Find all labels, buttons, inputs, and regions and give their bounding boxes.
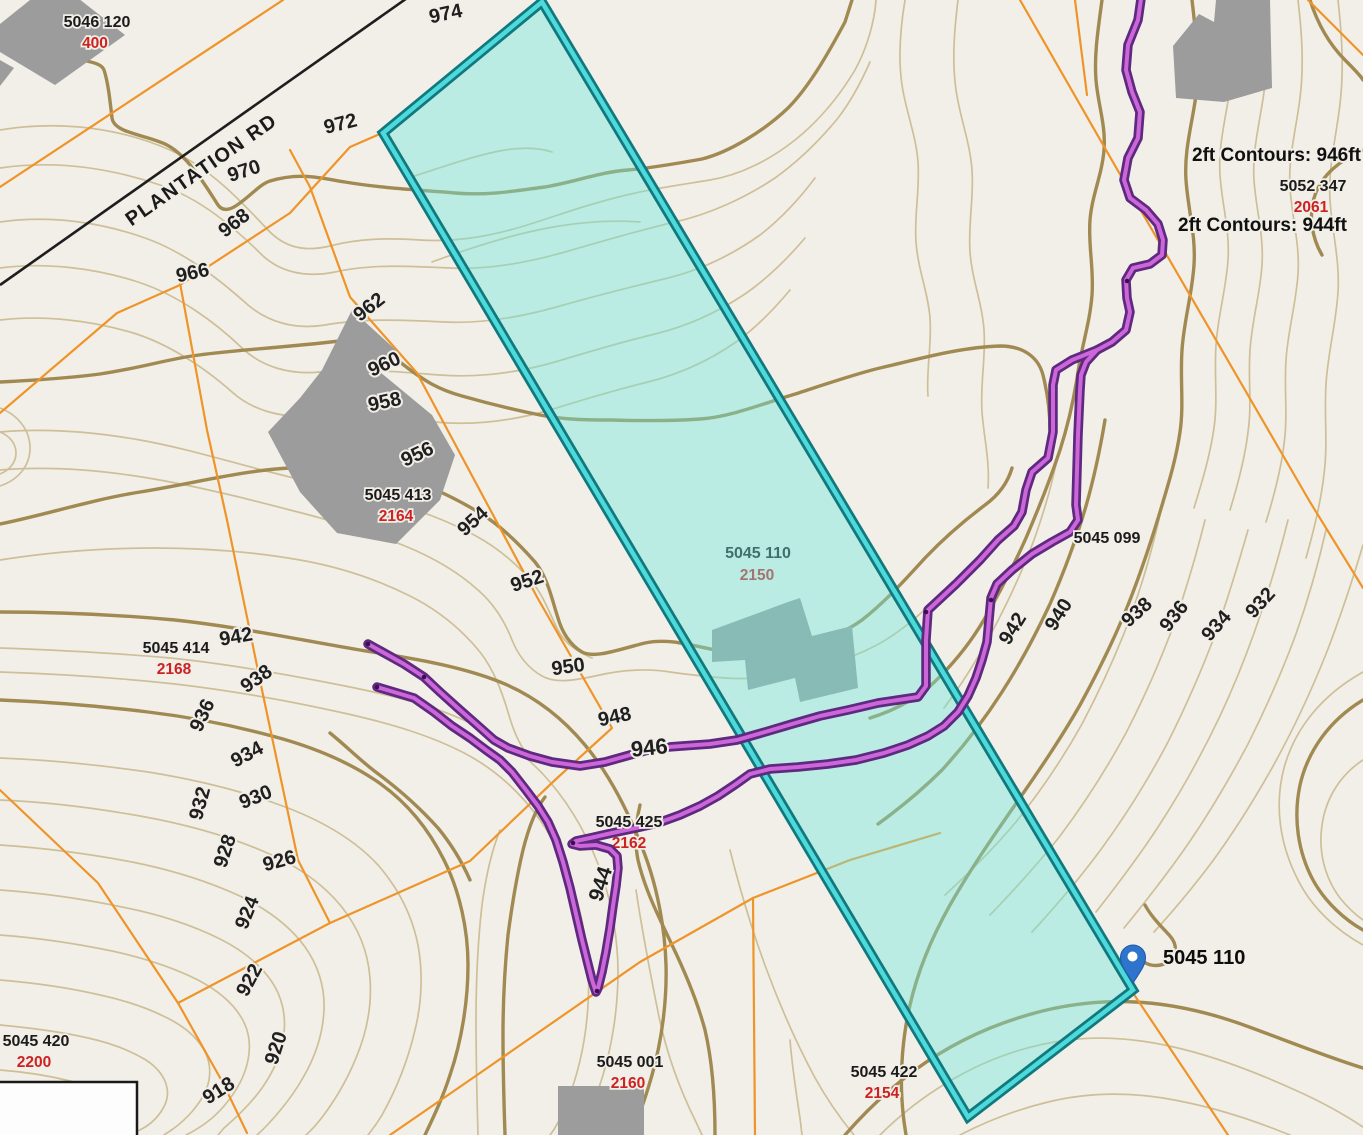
parcel-id-label: 5045 414 xyxy=(143,640,210,657)
contour-elevation-label: 946 xyxy=(630,733,669,762)
parcel-address-label: 2154 xyxy=(865,1085,900,1102)
parcel-address-label: 2168 xyxy=(157,661,192,678)
scale-inset-box xyxy=(0,1082,137,1135)
pin-parcel-label: 5045 110 xyxy=(1163,947,1245,969)
parcel-map: 5045 110 2150 2162 974972970968966962960… xyxy=(0,0,1363,1135)
parcel-id-label: 5045 422 xyxy=(851,1064,918,1081)
contour-callout-944: 2ft Contours: 944ft xyxy=(1178,215,1348,236)
parcel-address-label: 2164 xyxy=(379,508,414,525)
parcel-id-label: 5045 420 xyxy=(3,1033,70,1050)
pin-center-dot xyxy=(1128,952,1138,962)
parcel-id-label: 5045 413 xyxy=(365,487,432,504)
parcel-id-label: 5046 120 xyxy=(64,14,131,31)
parcel-id-label: 5052 347 xyxy=(1280,178,1347,195)
map-viewport[interactable]: 5045 110 2150 2162 974972970968966962960… xyxy=(0,0,1363,1135)
parcel-id-label: 5045 099 xyxy=(1074,530,1141,547)
parcel-address-label: 2200 xyxy=(17,1054,51,1071)
parcel-address-label: 2061 xyxy=(1294,199,1329,216)
contour-elevation-label: 950 xyxy=(550,654,586,680)
parcel-id-label: 5045 425 xyxy=(596,814,663,831)
parcel-address-label: 400 xyxy=(82,35,108,52)
building-footprint xyxy=(558,1086,644,1135)
contour-callout-946: 2ft Contours: 946ft xyxy=(1192,145,1362,166)
parcel-address-label: 2160 xyxy=(611,1075,645,1092)
parcel-id-label: 5045 001 xyxy=(597,1054,664,1071)
